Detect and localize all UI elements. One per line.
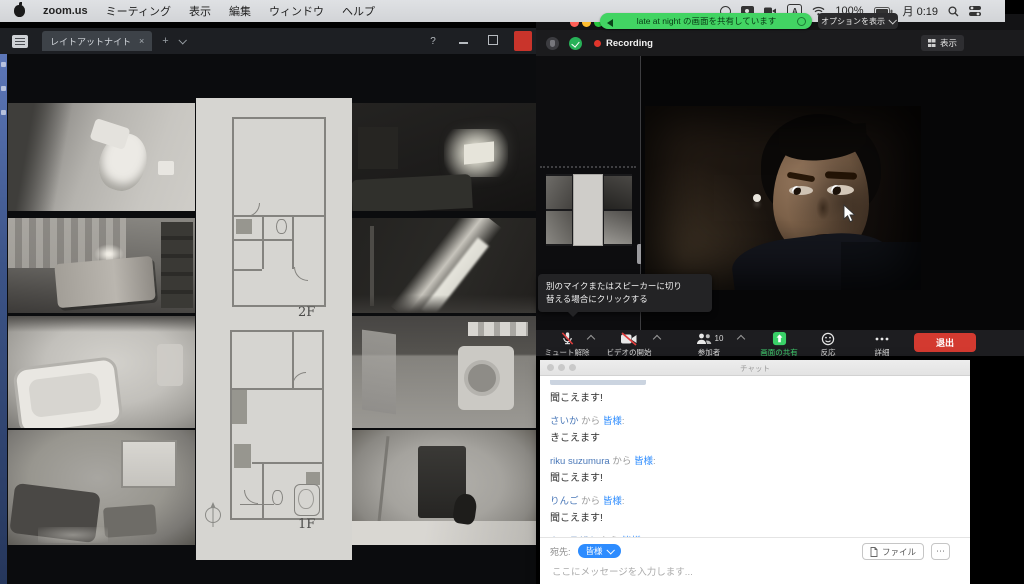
camera-feed-entrance[interactable] <box>352 430 536 545</box>
window-close-button[interactable] <box>514 31 532 51</box>
shared-screen-thumbnail[interactable] <box>546 174 632 246</box>
camera-feed-laundry-room[interactable] <box>352 316 536 428</box>
monitor-titlebar: レイトアットナイト × + ? <box>0 28 536 54</box>
unmute-button[interactable]: ミュート解除 <box>540 331 594 358</box>
toilet-symbol <box>272 490 283 505</box>
chat-message: さいか から 皆様: きこえます <box>550 413 956 444</box>
share-options-button[interactable]: オプションを表示 <box>818 13 898 29</box>
encryption-check-icon <box>569 37 582 50</box>
camera-feed-bedroom[interactable] <box>8 218 195 313</box>
camera-feed-living-room[interactable] <box>8 430 195 545</box>
tab-close-icon[interactable]: × <box>139 36 144 46</box>
floor-label-2f: 2F <box>298 305 315 320</box>
mouse-cursor <box>843 204 856 223</box>
meeting-info-icon[interactable] <box>546 37 559 50</box>
participants-count: 10 <box>715 334 724 343</box>
menu-help[interactable]: ヘルプ <box>342 3 375 19</box>
reactions-button[interactable]: 反応 <box>808 331 848 358</box>
help-button[interactable]: ? <box>418 36 448 47</box>
control-center-icon[interactable] <box>969 6 981 16</box>
zoom-toolbar: ミュート解除 ビデオの開始 10 参加者 <box>536 330 1024 356</box>
chat-message: 聞こえます! <box>550 380 956 404</box>
chat-message: りんご から 皆様: 聞こえます! <box>550 493 956 524</box>
participants-chevron[interactable] <box>737 335 745 343</box>
apple-menu-icon[interactable] <box>14 5 25 17</box>
tab-list-chevron-icon[interactable] <box>178 36 186 44</box>
view-button[interactable]: 表示 <box>921 35 964 51</box>
panel-divider-dots <box>540 166 636 168</box>
tab-late-at-night[interactable]: レイトアットナイト × <box>42 31 152 51</box>
camera-muted-icon <box>620 331 638 346</box>
menu-view[interactable]: 表示 <box>189 3 211 19</box>
screen-share-banner: late at night の画面を共有しています <box>600 13 812 29</box>
camera-feed-toilet[interactable] <box>8 103 195 211</box>
menu-edit[interactable]: 編集 <box>229 3 251 19</box>
sender-name: りんご <box>550 496 579 507</box>
audio-switch-tooltip: 別のマイクまたはスピーカーに切り 替える場合にクリックする <box>538 274 712 312</box>
speaker-icon <box>607 17 616 25</box>
microphone-muted-icon <box>560 331 575 346</box>
camera-feed-hallway[interactable] <box>352 218 536 313</box>
share-screen-icon <box>772 331 787 346</box>
share-screen-button[interactable]: 画面の共有 <box>752 331 806 358</box>
recipient-selector[interactable]: 皆様 <box>578 544 621 558</box>
chat-footer: 宛先: 皆様 ファイル ⋯ <box>540 537 970 584</box>
spotlight-search-icon[interactable] <box>948 6 959 17</box>
app-sidebar <box>0 54 7 584</box>
tab-title: レイトアットナイト <box>50 35 131 48</box>
camera-feed-dark-bedroom[interactable] <box>352 103 536 211</box>
camera-feed-bathroom[interactable] <box>8 316 195 428</box>
sender-name: さいか <box>550 416 579 427</box>
reactions-icon <box>821 331 835 346</box>
zoom-meeting-window: Recording 表示 <box>536 14 1024 356</box>
recipient-name: 皆様 <box>603 496 622 507</box>
participant-video[interactable] <box>645 106 921 290</box>
chat-message: riku suzumura から 皆様: 聞こえます! <box>550 453 956 484</box>
message-body: 聞こえます! <box>550 389 956 404</box>
toilet-symbol <box>276 219 287 234</box>
bathtub-symbol <box>294 484 320 516</box>
message-body: 聞こえます! <box>550 509 956 524</box>
recipient-name: 皆様 <box>634 456 653 467</box>
chevron-down-icon <box>888 16 896 24</box>
chat-titlebar[interactable]: チャット <box>540 360 970 376</box>
stop-share-icon[interactable] <box>797 17 806 26</box>
floor-label-1f: 1F <box>298 517 315 532</box>
recording-dot-icon <box>594 40 601 47</box>
leave-meeting-button[interactable]: 退出 <box>914 333 976 352</box>
recording-label: Recording <box>606 38 653 49</box>
sidebar-icon[interactable] <box>1 86 6 91</box>
sidebar-icon[interactable] <box>1 62 6 67</box>
menubar-clock[interactable]: 月 0:19 <box>903 3 938 19</box>
chat-window: チャット 聞こえます! さいか から 皆様: きこえます riku suzumu… <box>540 360 970 584</box>
participants-button[interactable]: 10 参加者 <box>682 331 736 358</box>
sidebar-icon[interactable] <box>1 110 6 115</box>
compass-icon <box>204 500 222 530</box>
share-banner-text: late at night の画面を共有しています <box>616 15 797 27</box>
menu-window[interactable]: ウィンドウ <box>269 3 324 19</box>
zoom-header: Recording 表示 <box>536 30 1024 56</box>
document-icon <box>870 547 878 557</box>
message-body: 聞こえます! <box>550 469 956 484</box>
to-label: 宛先: <box>550 545 571 558</box>
chat-message-list[interactable]: 聞こえます! さいか から 皆様: きこえます riku suzumura から… <box>550 380 956 538</box>
minimize-button[interactable] <box>448 36 478 47</box>
recipient-name: 皆様 <box>603 416 622 427</box>
menu-meeting[interactable]: ミーティング <box>106 3 171 19</box>
desktop: zoom.us ミーティング 表示 編集 ウィンドウ ヘルプ A 100% 月 … <box>0 0 1024 584</box>
chevron-down-icon <box>606 546 614 554</box>
floorplan-2f <box>232 117 326 307</box>
menubar-app-name[interactable]: zoom.us <box>43 5 88 17</box>
hamburger-menu-icon[interactable] <box>12 35 28 48</box>
chat-window-title: チャット <box>540 363 970 374</box>
message-body: きこえます <box>550 429 956 444</box>
file-button[interactable]: ファイル <box>862 543 924 560</box>
monitoring-app-window: レイトアットナイト × + ? <box>0 28 536 584</box>
new-tab-button[interactable]: + <box>162 35 168 47</box>
floorplan-panel: 2F 1F <box>196 98 352 560</box>
chat-message-input[interactable] <box>550 566 934 579</box>
more-dots-icon <box>874 331 890 346</box>
floorplan-1f <box>230 330 324 520</box>
sender-name: riku suzumura <box>550 456 610 467</box>
earphone <box>753 194 761 202</box>
more-button[interactable]: 詳細 <box>862 331 902 358</box>
view-grid-icon <box>928 39 936 47</box>
chat-more-button[interactable]: ⋯ <box>931 543 950 560</box>
start-video-button[interactable]: ビデオの開始 <box>602 331 656 358</box>
maximize-button[interactable] <box>478 35 508 48</box>
participants-icon <box>695 332 713 346</box>
clipped-sender-name <box>550 380 646 385</box>
